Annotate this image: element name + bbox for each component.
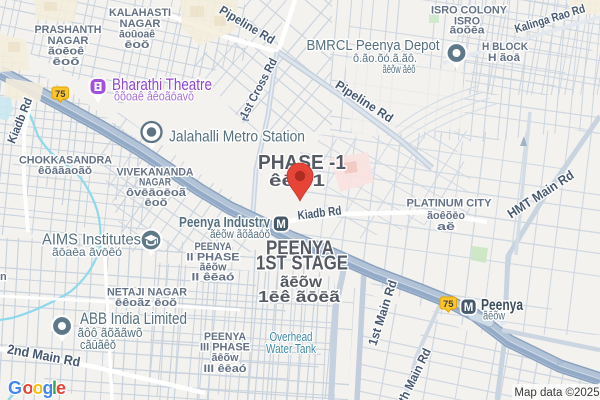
svg-text:75: 75 — [55, 89, 66, 100]
svg-text:ēoŏ: ēoŏ — [53, 56, 80, 68]
svg-text:ãōaēa ãvōêó: ãōaēa ãvōêó — [52, 245, 122, 259]
svg-text:G: G — [8, 378, 22, 398]
svg-text:ēoŏ: ēoŏ — [125, 39, 150, 51]
svg-text:ēoŏ: ēoŏ — [145, 197, 168, 209]
svg-text:1ēê ãōēã: 1ēê ãōēã — [258, 289, 340, 306]
svg-text:Water Tank: Water Tank — [266, 342, 317, 356]
svg-text:ãēõw ãõăaōŏ: ãēõw ãõăaōŏ — [210, 229, 270, 241]
svg-text:ēêoãz ēoŏ: ēêoãz ēoŏ — [115, 297, 177, 309]
svg-text:PLATINUM CITY: PLATINUM CITY — [407, 198, 493, 210]
svg-text:1ST STAGE: 1ST STAGE — [256, 253, 348, 275]
svg-text:e: e — [56, 378, 66, 398]
svg-text:ãēõw ăēõ: ãēõw ăēõ — [383, 62, 416, 76]
svg-text:M: M — [276, 219, 286, 231]
svg-text:ãēõw: ãēõw — [483, 311, 506, 323]
svg-text:Jalahalli Metro Station: Jalahalli Metro Station — [169, 129, 305, 146]
svg-text:cãūãêŏ: cãūãêŏ — [80, 338, 116, 352]
svg-text:III êēaó: III êēaó — [204, 363, 247, 375]
svg-text:ôõoaê âêoãōavŏ: ôõoaê âêoãōavŏ — [114, 89, 194, 104]
svg-text:75: 75 — [443, 299, 454, 310]
svg-text:H ãoā: H ãoā — [488, 52, 521, 64]
svg-text:āoõēa: āoõēa — [450, 25, 486, 37]
svg-text:Map data ©2025: Map data ©2025 — [514, 387, 599, 399]
svg-text:êõāãaoãŏ: êõāãaoãŏ — [38, 165, 92, 177]
svg-text:aĕ: aĕ — [437, 221, 455, 233]
svg-text:n: n — [0, 271, 7, 283]
svg-text:M: M — [464, 302, 474, 314]
svg-text:II êēaó: II êēaó — [192, 272, 235, 284]
